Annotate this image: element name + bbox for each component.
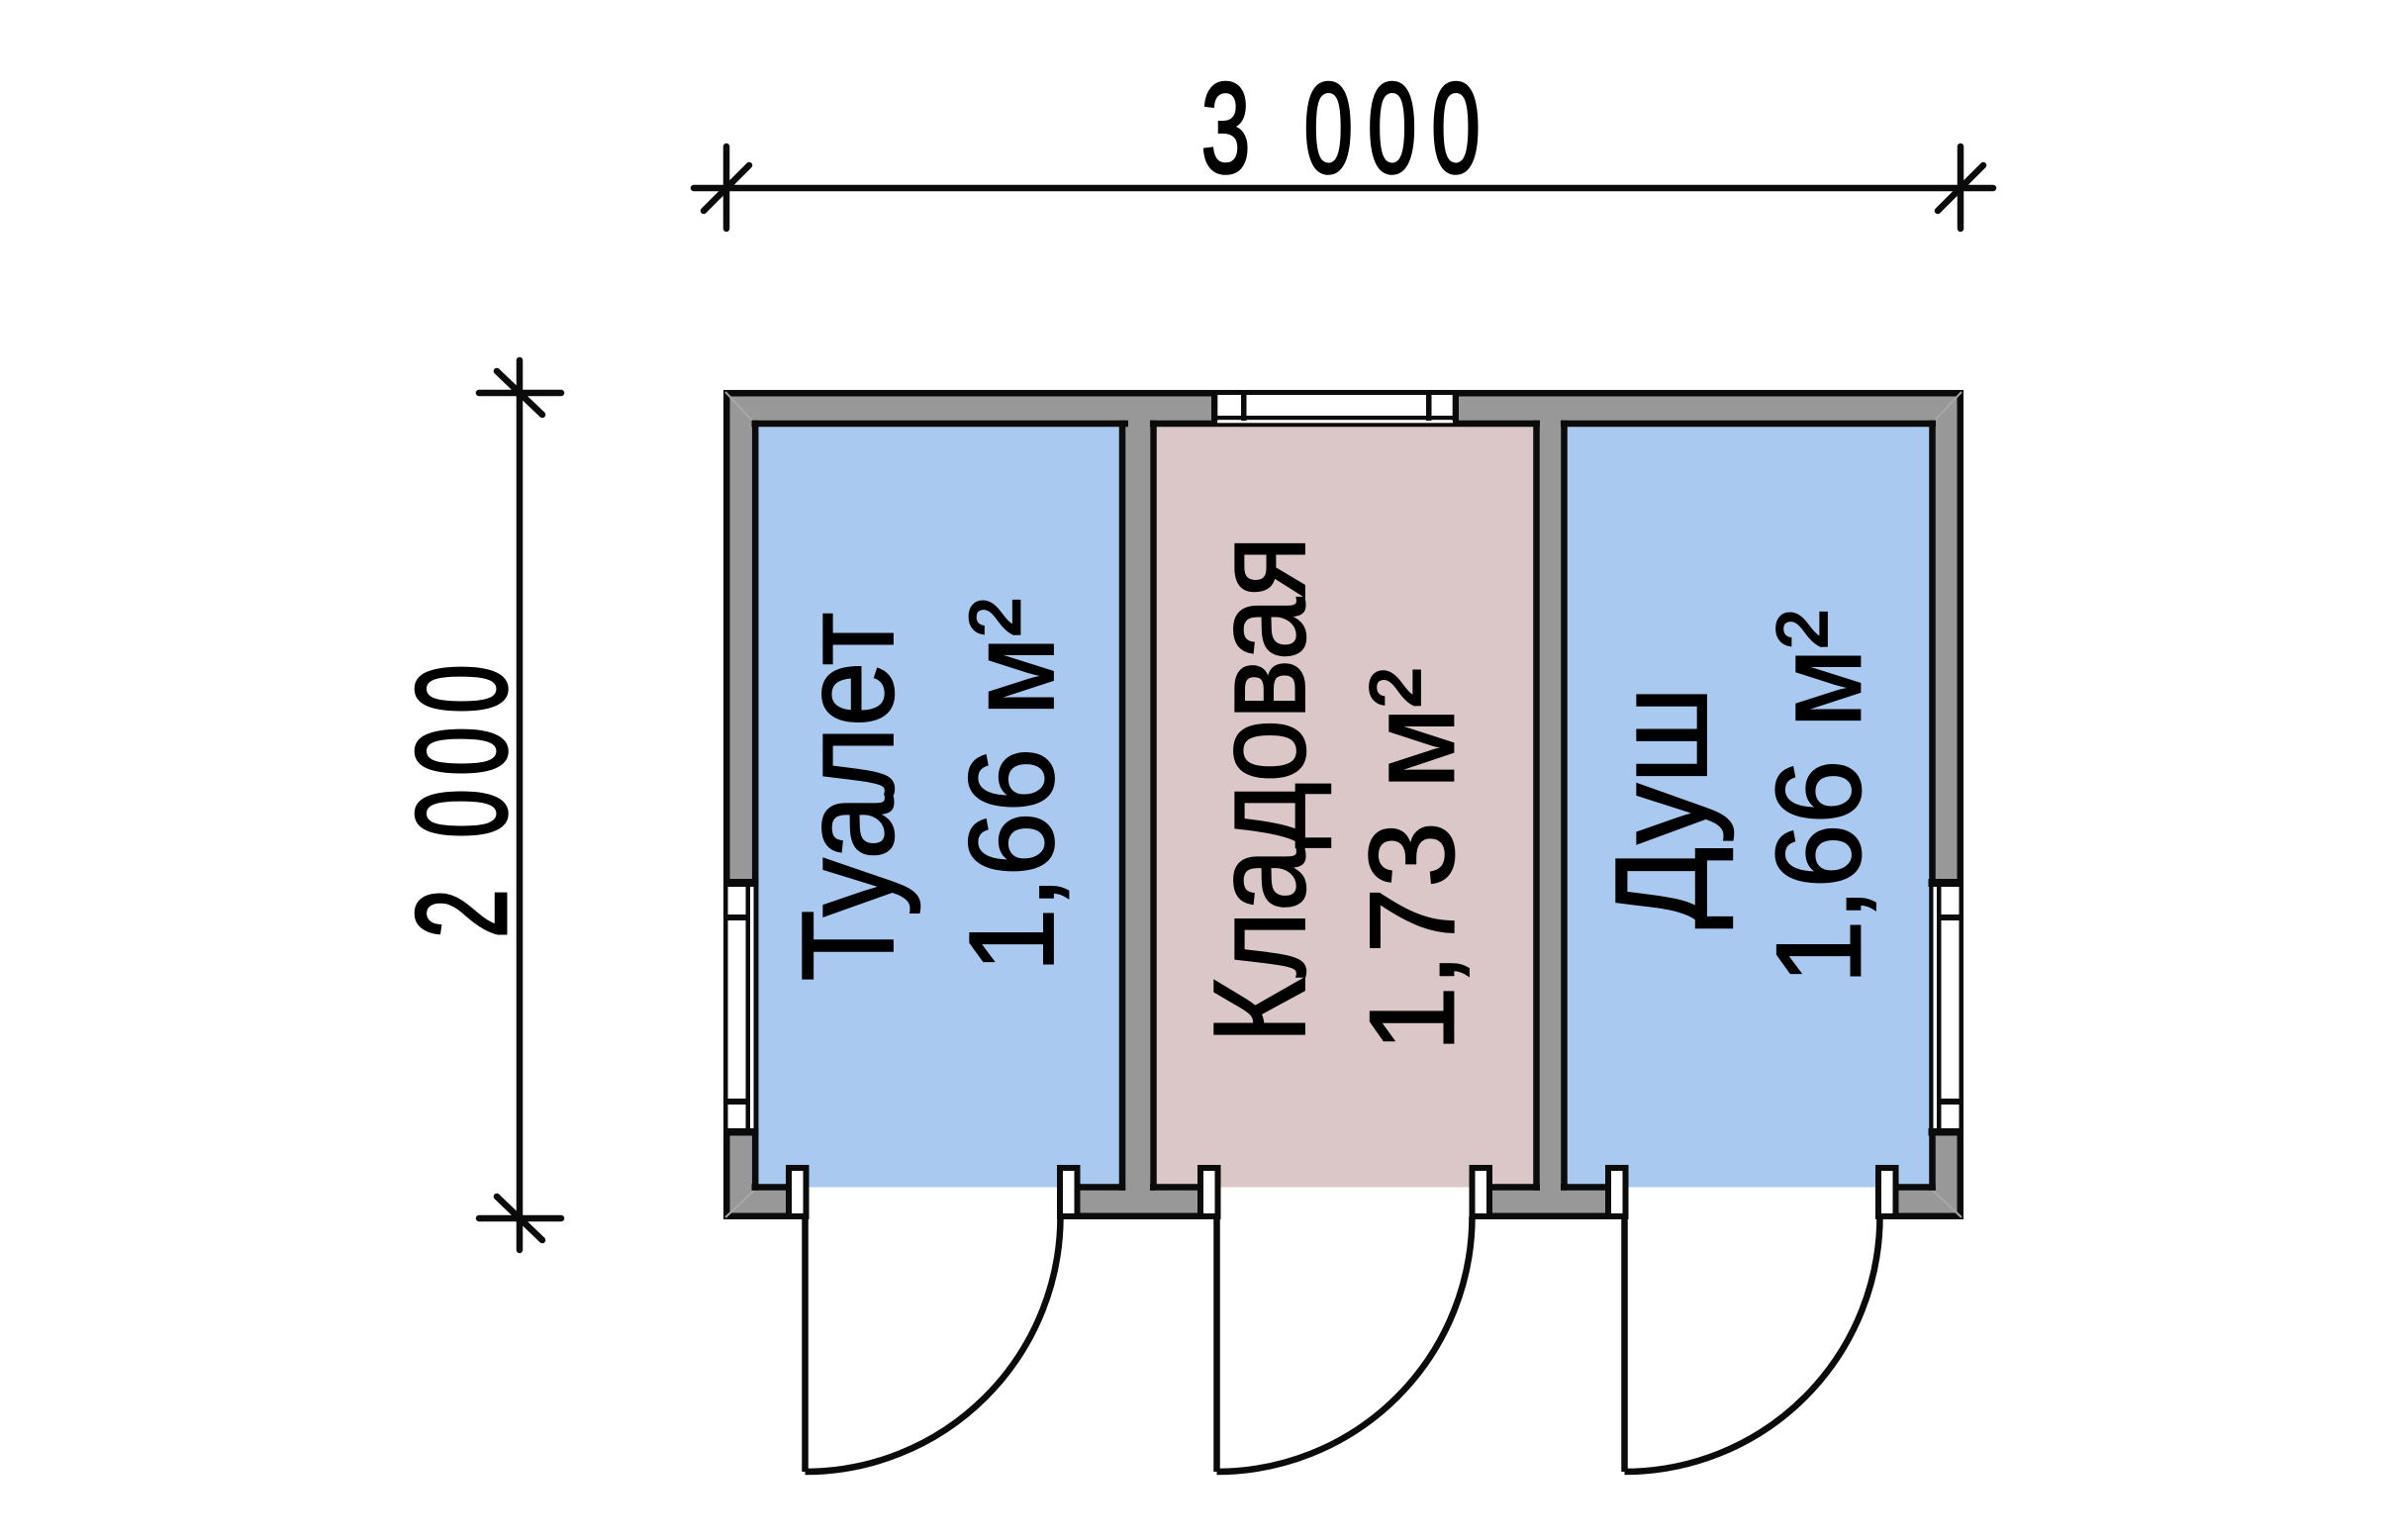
svg-text:1,73 м²: 1,73 м² <box>1344 668 1479 1052</box>
svg-text:2 000: 2 000 <box>389 651 533 938</box>
svg-text:1,66 м²: 1,66 м² <box>945 599 1080 973</box>
svg-text:Душ: Душ <box>1588 687 1734 929</box>
svg-text:Туалет: Туалет <box>775 613 921 982</box>
svg-text:1,66 м²: 1,66 м² <box>1752 611 1886 985</box>
svg-text:3 000: 3 000 <box>1201 55 1495 200</box>
svg-text:Кладовая: Кладовая <box>1187 536 1332 1044</box>
